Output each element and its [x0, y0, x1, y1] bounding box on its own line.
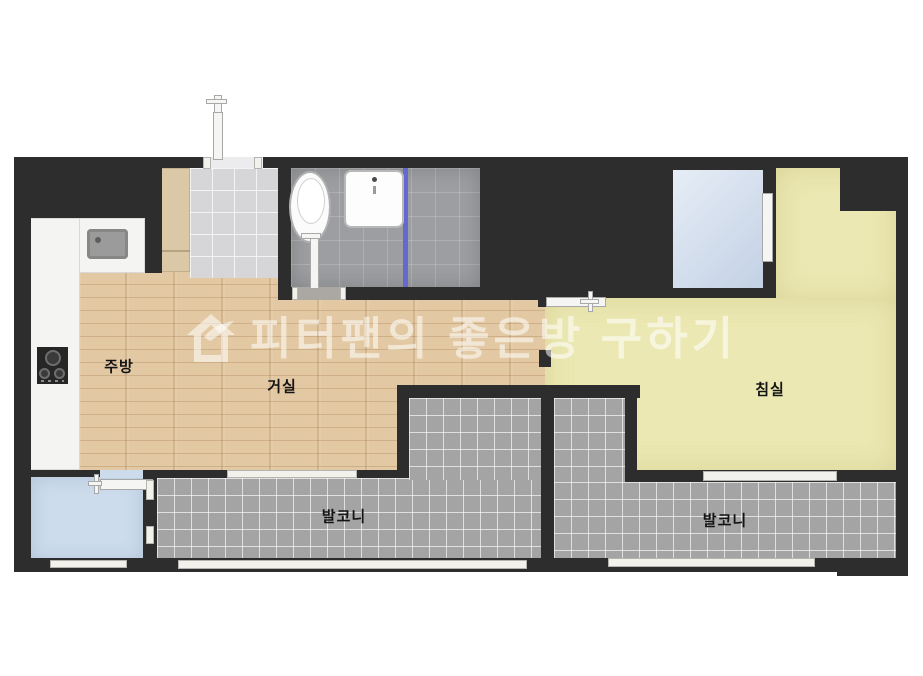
entry-door-leaf	[213, 112, 223, 160]
wall-left	[14, 157, 31, 572]
wall-balcony-divider	[541, 390, 554, 572]
stove-knobs	[41, 380, 64, 382]
kitchen-side-wall	[145, 168, 162, 273]
entry-door-jamb-right	[254, 157, 262, 169]
bedroom-corner-shaft	[840, 168, 896, 211]
room-label-balcony-left: 발코니	[322, 506, 366, 527]
bathroom-door-jamb-left	[292, 287, 298, 300]
balcony-right-window	[608, 558, 815, 567]
entry-door-handle-lever	[206, 99, 227, 104]
living-balcony-window	[227, 470, 357, 478]
wall-right	[896, 157, 908, 576]
wall-bedroom-step	[625, 385, 637, 482]
washbasin-icon	[344, 170, 404, 228]
room-label-living: 거실	[267, 376, 297, 397]
bedroom-balcony-window	[703, 471, 837, 481]
bathroom-door-opening	[295, 287, 343, 300]
utility-window	[50, 560, 127, 568]
washbasin-faucet	[372, 177, 377, 182]
balcony-left-floor-b	[409, 398, 541, 480]
wall-bottom-right-corner	[837, 558, 908, 576]
bathroom-door-leaf	[310, 237, 319, 289]
house-with-swoosh-icon	[184, 311, 238, 365]
room-label-kitchen: 주방	[104, 356, 134, 377]
wall-living-balcony-top	[397, 385, 640, 398]
kitchen-counter-left	[28, 218, 80, 470]
wall-living-step	[397, 385, 409, 478]
stove-icon	[37, 347, 68, 384]
bedroom-door-handle-h	[580, 299, 599, 304]
washbasin-drain	[373, 186, 376, 194]
entry-door-handle-plate	[214, 95, 222, 113]
watermark: 피터팬의 좋은방 구하기	[184, 306, 749, 370]
utility-door-handle-h	[88, 481, 102, 486]
utility-wall-hinge-mark-2	[146, 526, 154, 544]
kitchen-sink-icon	[87, 229, 128, 259]
closet-fill	[673, 170, 763, 288]
shoe-cabinet	[160, 168, 190, 272]
utility-wall-hinge-mark-1	[146, 480, 154, 500]
shoe-cabinet-divider	[160, 250, 190, 252]
balcony-left-window	[178, 560, 527, 569]
floor-plan: 피터팬의 좋은방 구하기 주방 거실 침실 발코니 발코니	[0, 0, 923, 676]
room-label-balcony-right: 발코니	[703, 510, 747, 531]
closet-door	[762, 193, 773, 262]
bathroom-door-jamb-right	[340, 287, 346, 300]
entry-door-jamb-left	[203, 157, 211, 169]
watermark-text: 피터팬의 좋은방 구하기	[250, 316, 737, 361]
toilet-seat	[297, 178, 325, 224]
kitchen-faucet-icon	[95, 237, 101, 243]
entry-floor	[190, 168, 278, 278]
kitchen-upper-wall	[31, 168, 162, 218]
room-label-bedroom: 침실	[755, 379, 785, 400]
wall-top	[14, 157, 908, 168]
bathroom-door-handle	[301, 233, 321, 239]
